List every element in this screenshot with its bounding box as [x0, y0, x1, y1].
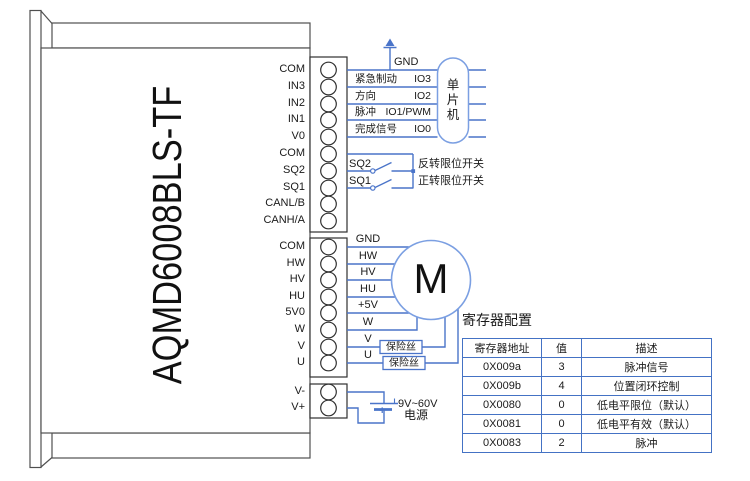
pin-label-sq1: SQ1 [215, 181, 305, 194]
pin-label-com3: COM [215, 240, 305, 253]
terminal-pin [321, 239, 337, 255]
table-row: 0X0081 0 低电平有效（默认） [463, 415, 712, 434]
forward-limit-switch-label: 正转限位开关 [418, 175, 484, 188]
pin-label-hw: HW [215, 257, 305, 270]
reg-desc: 脉冲信号 [582, 358, 712, 377]
pin-label-sq2: SQ2 [215, 164, 305, 177]
pin-label-vminus: V- [215, 385, 305, 398]
motor-wire-hv: HV [351, 266, 385, 279]
signal-name: 完成信号 [355, 123, 397, 136]
terminal-pin [321, 96, 337, 112]
mcu-label: 单 片 机 [437, 58, 469, 143]
terminal-pin [321, 180, 337, 196]
reg-address: 0X0083 [463, 434, 542, 453]
mcu-char: 单 [447, 78, 460, 93]
signal-label-io2: 方向 IO2 [350, 90, 434, 103]
wire-junction-dot [411, 169, 415, 173]
table-row: 0X009b 4 位置闭环控制 [463, 377, 712, 396]
pin-label-com1: COM [215, 63, 305, 76]
gnd-label: GND [394, 56, 418, 68]
register-table: 寄存器地址 值 描述 0X009a 3 脉冲信号 0X009b 4 位置闭环控制… [462, 338, 712, 453]
table-row: 0X009a 3 脉冲信号 [463, 358, 712, 377]
register-table-title: 寄存器配置 [462, 311, 532, 329]
wiring-diagram-page: AQMD6008BLS-TF COM IN3 IN2 IN1 V0 COM SQ… [0, 0, 750, 481]
table-row: 0X0080 0 低电平限位（默认） [463, 396, 712, 415]
sq1-wire-label: SQ1 [349, 175, 371, 188]
table-row: 0X0083 2 脉冲 [463, 434, 712, 453]
pin-label-v0: V0 [215, 130, 305, 143]
terminal-pin [321, 272, 337, 288]
terminal-pin [321, 384, 337, 400]
motor-wire-hu: HU [351, 283, 385, 296]
pin-label-vplus: V+ [215, 401, 305, 414]
terminal-pin [321, 355, 337, 371]
terminal-pin [321, 62, 337, 78]
top-flange [52, 23, 310, 48]
bottom-flange [52, 433, 310, 458]
pin-label-hv: HV [215, 273, 305, 286]
terminal-pin [321, 256, 337, 272]
terminal-pin [321, 163, 337, 179]
terminal-pin [321, 400, 337, 416]
pin-label-u: U [215, 356, 305, 369]
battery-plus-sign: + [379, 405, 385, 417]
pin-label-canha: CANH/A [215, 214, 305, 227]
signal-io: IO0 [414, 123, 431, 136]
reg-desc: 位置闭环控制 [582, 377, 712, 396]
signal-io: IO2 [414, 90, 431, 103]
signal-name: 紧急制动 [355, 73, 397, 86]
terminal-pin [321, 129, 337, 145]
signal-label-io1: 脉冲 IO1/PWM [350, 106, 434, 119]
reverse-limit-switch-label: 反转限位开关 [418, 158, 484, 171]
signal-name: 脉冲 [355, 106, 376, 119]
reg-value: 4 [542, 377, 582, 396]
vminus-wire-battery-top-plate [347, 392, 398, 404]
gnd-arrow-icon [386, 39, 395, 47]
bevel-bottom [41, 458, 52, 468]
col-header-address: 寄存器地址 [463, 339, 542, 358]
terminal-pin [321, 196, 337, 212]
signal-io: IO3 [414, 73, 431, 86]
pin-label-in3: IN3 [215, 80, 305, 93]
pin-label-hu: HU [215, 290, 305, 303]
reg-address: 0X0080 [463, 396, 542, 415]
terminal-pin [321, 339, 337, 355]
device-model-label: AQMD6008BLS-TF [145, 67, 189, 403]
signal-label-io0: 完成信号 IO0 [350, 123, 434, 136]
motor-wire-gnd: GND [351, 233, 385, 246]
terminal-pin [321, 213, 337, 229]
terminal-pin [321, 112, 337, 128]
reg-desc: 低电平限位（默认） [582, 396, 712, 415]
signal-label-io3: 紧急制动 IO3 [350, 73, 434, 86]
terminal-pin [321, 305, 337, 321]
pin-label-com2: COM [215, 147, 305, 160]
signal-name: 方向 [355, 90, 376, 103]
pin-label-v: V [215, 340, 305, 353]
pin-label-in2: IN2 [215, 97, 305, 110]
mcu-stubs [469, 70, 487, 137]
reg-address: 0X009b [463, 377, 542, 396]
mcu-char: 片 [447, 93, 460, 108]
col-header-value: 值 [542, 339, 582, 358]
bevel-top [41, 11, 52, 24]
motor-wire-hw: HW [351, 250, 385, 263]
pin-label-5v0: 5V0 [215, 306, 305, 319]
motor-symbol: M [411, 254, 451, 304]
heatsink-fin [30, 11, 41, 468]
reg-value: 3 [542, 358, 582, 377]
pin-label-in1: IN1 [215, 113, 305, 126]
terminal-blocks [310, 57, 347, 418]
terminal-pin [321, 322, 337, 338]
sq2-switch-pivot [371, 169, 375, 173]
motor-wire-5v: +5V [351, 299, 385, 312]
terminal-pin [321, 289, 337, 305]
fuse-label-u: 保险丝 [383, 357, 425, 370]
power-name-label: 电源 [404, 409, 428, 422]
reg-address: 0X009a [463, 358, 542, 377]
reg-value: 0 [542, 415, 582, 434]
table-header-row: 寄存器地址 值 描述 [463, 339, 712, 358]
mcu-char: 机 [447, 108, 460, 123]
pin-label-canlb: CANL/B [215, 197, 305, 210]
pin-label-w: W [215, 323, 305, 336]
col-header-desc: 描述 [582, 339, 712, 358]
sq1-switch-pivot [371, 186, 375, 190]
reg-value: 2 [542, 434, 582, 453]
fuse-label-v: 保险丝 [380, 341, 422, 354]
reg-address: 0X0081 [463, 415, 542, 434]
terminal-pin [321, 146, 337, 162]
motor-wire-w: W [351, 316, 385, 329]
terminal-pin [321, 79, 337, 95]
signal-io: IO1/PWM [385, 106, 431, 119]
reg-desc: 低电平有效（默认） [582, 415, 712, 434]
reg-desc: 脉冲 [582, 434, 712, 453]
sq2-wire-label: SQ2 [349, 158, 371, 171]
reg-value: 0 [542, 396, 582, 415]
